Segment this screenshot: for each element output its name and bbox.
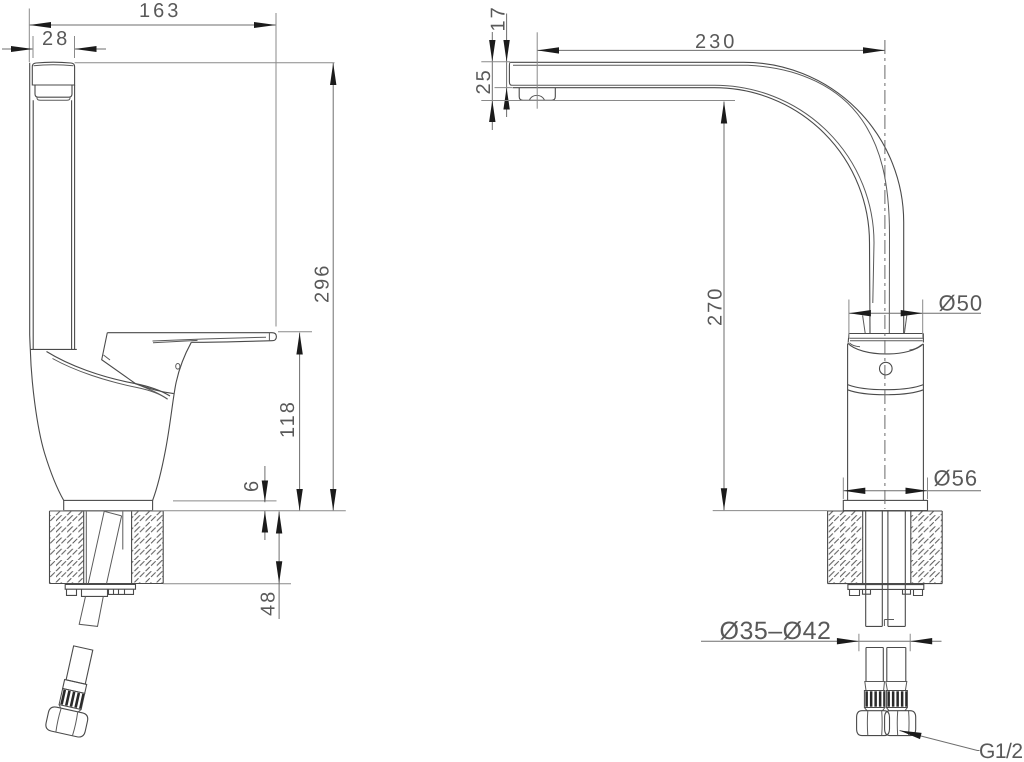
svg-text:118: 118 — [277, 400, 299, 438]
svg-text:28: 28 — [42, 28, 70, 50]
svg-text:G1/2: G1/2 — [979, 740, 1023, 762]
svg-text:163: 163 — [139, 0, 181, 22]
svg-text:Ø56: Ø56 — [934, 466, 979, 491]
svg-text:Ø35–Ø42: Ø35–Ø42 — [720, 617, 832, 645]
svg-text:25: 25 — [473, 68, 495, 94]
svg-text:230: 230 — [695, 31, 737, 53]
svg-text:296: 296 — [312, 264, 334, 303]
svg-text:Ø50: Ø50 — [939, 291, 984, 316]
svg-text:6: 6 — [241, 481, 263, 492]
svg-text:17: 17 — [488, 5, 510, 31]
svg-text:48: 48 — [258, 590, 280, 616]
svg-text:270: 270 — [705, 287, 727, 326]
